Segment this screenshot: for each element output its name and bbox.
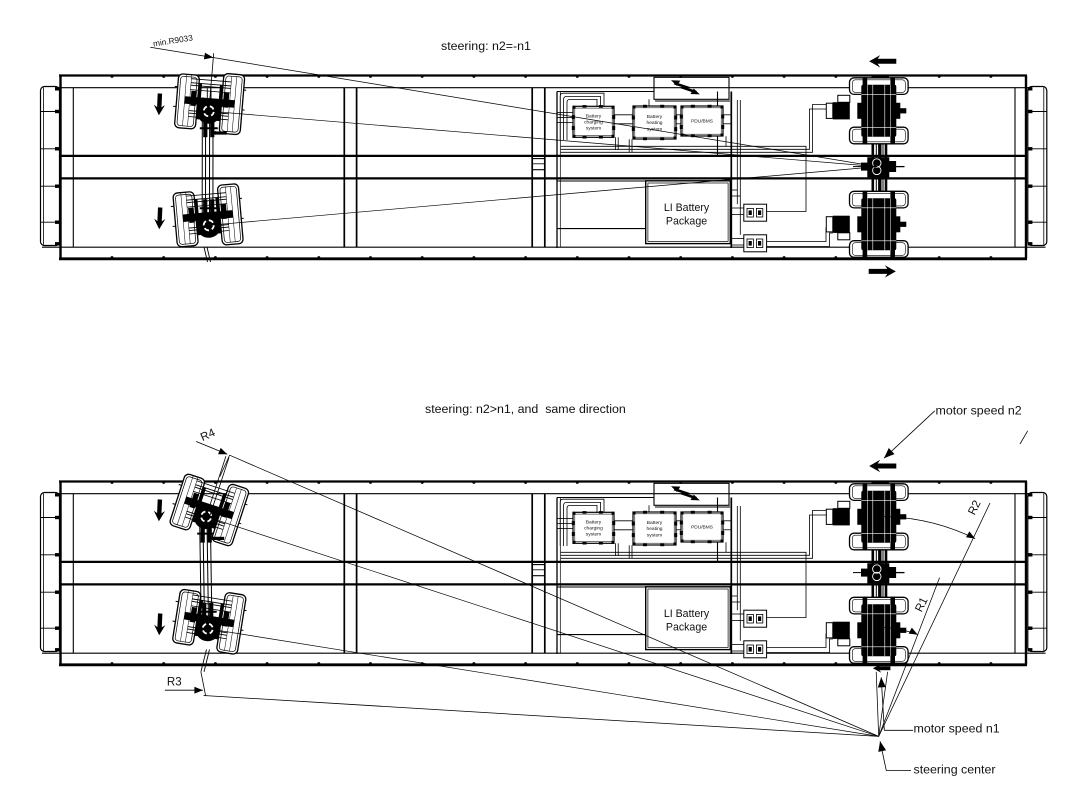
svg-text:system: system	[647, 532, 663, 538]
svg-text:Package: Package	[666, 621, 707, 633]
svg-text:charging: charging	[584, 526, 603, 532]
svg-text:steering center: steering center	[914, 763, 996, 777]
svg-text:LI Battery: LI Battery	[664, 202, 710, 214]
svg-text:system: system	[586, 126, 602, 132]
svg-text:motor speed n1: motor speed n1	[914, 721, 1000, 735]
svg-text:PDU/BMS: PDU/BMS	[691, 525, 713, 531]
svg-text:LI Battery: LI Battery	[664, 608, 710, 620]
svg-text:Battery: Battery	[647, 520, 663, 526]
svg-text:Battery: Battery	[647, 114, 663, 120]
svg-text:R3: R3	[167, 677, 182, 689]
svg-text:system: system	[586, 532, 602, 538]
svg-text:PDU/BMS: PDU/BMS	[691, 119, 713, 125]
svg-text:Package: Package	[666, 215, 707, 227]
svg-text:charging: charging	[584, 120, 603, 126]
svg-text:Battery: Battery	[586, 113, 602, 119]
svg-text:motor speed n2: motor speed n2	[936, 403, 1022, 417]
svg-text:heating: heating	[646, 526, 662, 532]
svg-text:heating: heating	[646, 120, 662, 126]
svg-text:steering: n2>n1, and same dir: steering: n2>n1, and same direction	[425, 402, 626, 416]
svg-text:Battery: Battery	[586, 519, 602, 525]
svg-text:steering: n2=-n1: steering: n2=-n1	[441, 39, 531, 53]
